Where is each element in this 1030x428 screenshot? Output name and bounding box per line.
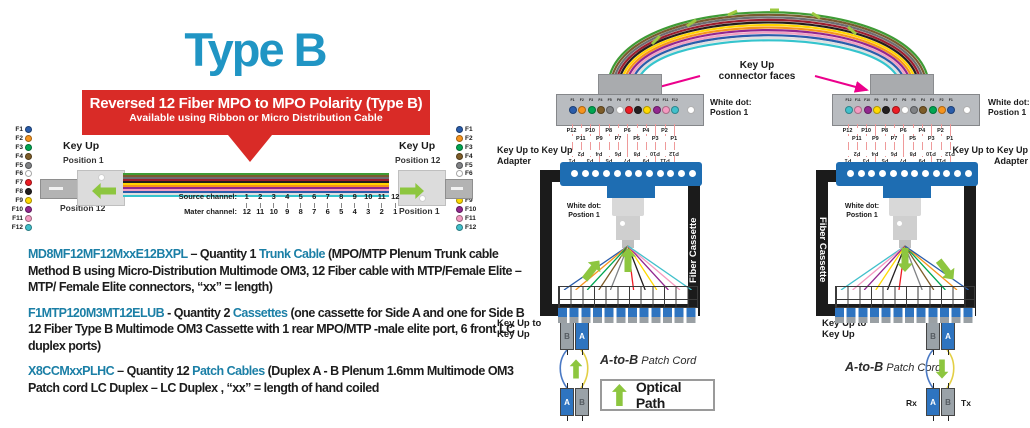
fiber-position-dot [910, 106, 918, 114]
fiber-label: F3 [465, 144, 480, 151]
cassette-description: F1MTP120M3MT12ELUB - Quantity 2 Cassette… [28, 305, 525, 355]
source-channel-value: 2 [254, 192, 268, 201]
cassette-mpo-right [893, 216, 917, 240]
fiber-color-dot [456, 170, 463, 177]
adapter-port-dot [689, 170, 696, 177]
mater-channel-value: 12 [240, 207, 254, 216]
fiber-position-dot [643, 106, 651, 114]
fiber-color-dot [456, 224, 463, 231]
fiber-position-dot [947, 106, 955, 114]
fiber-label: F8 [8, 188, 23, 195]
fiber-legend-left: F1F2F3F4F5F6F7F8F9F10F11F12 [8, 125, 32, 232]
rear-position-label: P6 [609, 150, 627, 156]
fiber-position-dot [892, 106, 900, 114]
source-channel-value: 5 [294, 192, 308, 201]
adapter-port-dot [678, 170, 685, 177]
adapter-port-dot [592, 170, 599, 177]
front-position-label: P1 [665, 136, 683, 142]
fiber-legend-row: F3 [456, 143, 480, 152]
fanout-fiber [628, 246, 680, 290]
mater-channel-value: 7 [308, 207, 322, 216]
banner-line2: Available using Ribbon or Micro Distribu… [82, 112, 430, 124]
keyup-connector-faces-label: Key Up connector faces [702, 60, 812, 82]
rear-position-label: P10 [922, 150, 940, 156]
fiber-label: F12 [8, 224, 23, 231]
separator: – [187, 247, 199, 261]
lc-feet-left [558, 317, 698, 323]
fiber-position-dot [616, 106, 624, 114]
fiber-position-dot [634, 106, 642, 114]
part-descriptions: MD8MF12MF12MxxE12BXPL – Quantity 1 Trunk… [28, 246, 525, 405]
trunk-right-keyup-label: Key Up [399, 140, 435, 152]
lc-duplex-bottom-right: A B [926, 388, 956, 416]
trunk-right-ferrule [445, 179, 473, 199]
mater-channel-label: Mater channel: [163, 207, 240, 216]
fiber-label: F2 [8, 135, 23, 142]
fiber-position-dot [854, 106, 862, 114]
rear-position-label: P8 [628, 150, 646, 156]
front-position-label: P5 [628, 136, 646, 142]
fiber-legend-row: F2 [456, 134, 480, 143]
fiber-label: F10 [8, 206, 23, 213]
fiber-label: F9 [8, 197, 23, 204]
source-channel-value: 4 [281, 192, 295, 201]
lc-port-grid-left [558, 300, 698, 308]
fiber-legend-row: F2 [8, 134, 32, 143]
source-channel-value: 7 [321, 192, 335, 201]
fiber-legend-row: F1 [456, 125, 480, 134]
lc-duplex-bottom-left: A B [560, 388, 590, 416]
lc-duplex-top-right: B A [926, 322, 956, 350]
source-channel-label: Source channel: [163, 192, 240, 201]
source-channel-value: 8 [335, 192, 349, 201]
fanout-fiber [905, 246, 945, 290]
rear-position-label: P4 [590, 150, 608, 156]
fiber-color-dot [25, 197, 32, 204]
mpo-connector-face-right: F12F11F10F9F8F7F6F5F4F3F2F1 [832, 94, 980, 126]
cassette-white-dot-label-right: White dot: Postion 1 [836, 203, 888, 220]
keyup-faces-line1: Key Up [702, 60, 812, 71]
tx-label: Tx [961, 398, 971, 408]
white-dot-line2: Postion 1 [836, 212, 888, 221]
white-dot-label-left: White dot: Postion 1 [710, 97, 752, 117]
front-position-label: P3 [922, 136, 940, 142]
duplex-half-a: A [575, 322, 589, 350]
fiber-color-dot [456, 162, 463, 169]
fiber-color-dot [456, 144, 463, 151]
trunk-left-pos1-label: Position 1 [63, 155, 104, 165]
adapter-port-dot [965, 170, 972, 177]
cassette-mpo-left [616, 216, 640, 240]
adapter-port-dot [933, 170, 940, 177]
fiber-label: F3 [8, 144, 23, 151]
lc-connectors-left [558, 308, 698, 317]
quantity: Quantity 2 [174, 306, 233, 320]
product-type: Cassettes [233, 306, 288, 320]
optical-up-arrow-icon [612, 384, 627, 406]
front-position-label: P8 [600, 128, 618, 134]
fiber-color-dot [456, 206, 463, 213]
fiber-cassette-label-right: Fiber Cassette [816, 198, 829, 302]
trunk-left-keyup-label: Key Up [63, 140, 99, 152]
adapter-port-dot [635, 170, 642, 177]
fanout-fiber [628, 246, 692, 290]
optical-path-label: Optical Path [636, 379, 713, 411]
fiber-position-dot [597, 106, 605, 114]
front-position-label: P6 [618, 128, 636, 134]
white-dot-line2: Postion 1 [556, 212, 612, 221]
white-dot-line1: White dot: [710, 97, 752, 107]
fiber-position-dot [845, 106, 853, 114]
adapter-port-dot [657, 170, 664, 177]
fiber-label: F5 [8, 162, 23, 169]
adapter-port-dot [922, 170, 929, 177]
duplex-half-a: A [941, 322, 955, 350]
fiber-position-dot [671, 106, 679, 114]
part-number: X8CCMxxPLHC [28, 364, 114, 378]
white-dot [98, 174, 105, 181]
fiber-label: F5 [465, 162, 480, 169]
fiber-position-dot [588, 106, 596, 114]
fiber-color-dot [25, 153, 32, 160]
optical-path-legend: Optical Path [600, 379, 715, 411]
fanout-fiber [905, 246, 957, 290]
fiber-color-dot [456, 215, 463, 222]
separator: - [164, 306, 174, 320]
lc-duplex-top-left: B A [560, 322, 590, 350]
banner: Reversed 12 Fiber MPO to MPO Polarity (T… [82, 90, 430, 135]
fiber-label: F1 [8, 126, 23, 133]
keyup-faces-line2: connector faces [702, 71, 812, 82]
trunk-right-pos12-label: Position 12 [395, 155, 440, 165]
fiber-color-dot [25, 126, 32, 133]
product-type: Trunk Cable [259, 247, 325, 261]
fiber-position-dot [662, 106, 670, 114]
fiber-color-dot [25, 144, 32, 151]
fiber-position-mini-label: F1 [942, 98, 959, 102]
mater-channel-value: 11 [254, 207, 268, 216]
patch-cord-text: Patch Cord [638, 355, 696, 367]
part-number: F1MTP120M3MT12ELUB [28, 306, 164, 320]
a-to-b-text: A-to-B [600, 353, 638, 367]
rear-position-label: P12 [665, 150, 683, 156]
fiber-legend-row: F1 [8, 125, 32, 134]
white-dot [619, 220, 626, 227]
duplex-half-b: B [575, 388, 589, 416]
fiber-position-mini-label: F12 [666, 98, 683, 102]
duplex-half-b: B [941, 388, 955, 416]
mpo-connector-face-left: F1F2F3F4F5F6F7F8F9F10F11F12 [556, 94, 704, 126]
keyup-to-line2: Key Up [497, 329, 541, 340]
fiber-label: F7 [8, 179, 23, 186]
adapter-port-dot [667, 170, 674, 177]
white-dot-line2: Postion 1 [710, 107, 752, 117]
adapter-port-dot [614, 170, 621, 177]
fiber-label: F11 [8, 215, 23, 222]
white-dot-line2: Postion 1 [988, 107, 1030, 117]
fiber-color-dot [25, 224, 32, 231]
rear-position-label: P6 [885, 150, 903, 156]
fiber-label: F11 [465, 215, 480, 222]
fiber-label: F2 [465, 135, 480, 142]
adapter-port-dot [582, 170, 589, 177]
front-position-label: P9 [590, 136, 608, 142]
fiber-legend-row: F3 [8, 143, 32, 152]
white-dot-line1: White dot: [556, 203, 612, 212]
lc-feet-right [835, 317, 975, 323]
lc-port-grid-right [835, 286, 975, 300]
source-channel-value: 3 [267, 192, 281, 201]
fiber-legend-row: F9 [8, 196, 32, 205]
white-dot-position1 [687, 106, 695, 114]
front-position-label: P7 [609, 136, 627, 142]
fiber-legend-row: F6 [456, 169, 480, 178]
adapter-port-dot [901, 170, 908, 177]
fiber-legend-row: F5 [8, 161, 32, 170]
fiber-color-dot [25, 135, 32, 142]
fiber-legend-row: F7 [8, 178, 32, 187]
fiber-position-dot [873, 106, 881, 114]
fiber-legend-row: F8 [8, 187, 32, 196]
front-position-label: P4 [637, 128, 655, 134]
fanout-fiber [841, 246, 905, 290]
type-b-polarity-diagram: Type B Reversed 12 Fiber MPO to MPO Pola… [0, 0, 1030, 428]
fiber-position-dot [919, 106, 927, 114]
fiber-position-dot [653, 106, 661, 114]
adapter-tab-right [883, 186, 931, 198]
fiber-position-dot [606, 106, 614, 114]
fiber-position-dot [901, 106, 909, 114]
adapter-label-line1: Key Up to Key Up [497, 145, 573, 156]
fanout-fiber [905, 246, 969, 290]
keyup-to-keyup-label-left: Key Up to Key Up [497, 318, 541, 340]
fiber-legend-row: F4 [8, 152, 32, 161]
rear-position-label: P2 [848, 150, 866, 156]
mater-channel-value: 8 [294, 207, 308, 216]
cassette-mpo-right [889, 196, 921, 216]
fanout-fiber [576, 246, 628, 290]
channel-map: Source channel:123456789101112Mater chan… [163, 192, 402, 216]
white-dot [419, 195, 426, 202]
quantity: Quantity 12 [127, 364, 193, 378]
fiber-legend-row: F12 [8, 223, 32, 232]
front-position-label: P7 [885, 136, 903, 142]
duplex-half-a: A [926, 388, 940, 416]
fiber-position-dot [938, 106, 946, 114]
fiber-label: F12 [465, 224, 480, 231]
fiber-color-dot [456, 153, 463, 160]
adapter-port-dot [868, 170, 875, 177]
fiber-color-dot [25, 162, 32, 169]
banner-pointer [228, 135, 272, 162]
adapter-port-dot [943, 170, 950, 177]
a-to-b-patch-cord-label-left: A-to-B Patch Cord [600, 351, 696, 369]
fiber-label: F6 [8, 170, 23, 177]
front-position-label: P12 [839, 128, 857, 134]
trunk-cable-description: MD8MF12MF12MxxE12BXPL – Quantity 1 Trunk… [28, 246, 525, 296]
keyup-to-line1: Key Up to [497, 318, 541, 329]
source-channel-value: 9 [348, 192, 362, 201]
fiber-label: F1 [465, 126, 480, 133]
keyup-to-line2: Key Up [822, 329, 866, 340]
fiber-color-dot [25, 170, 32, 177]
front-position-label: P4 [913, 128, 931, 134]
front-position-label: P11 [848, 136, 866, 142]
front-position-label: P3 [646, 136, 664, 142]
a-to-b-text: A-to-B [845, 360, 883, 374]
duplex-half-b: B [560, 322, 574, 350]
cassette-white-dot-label-left: White dot: Postion 1 [556, 203, 612, 220]
adapter-label-line1: Key Up to Key Up [940, 145, 1028, 156]
front-position-label: P2 [932, 128, 950, 134]
mater-channel-value: 6 [321, 207, 335, 216]
source-channel-row: Source channel:123456789101112 [163, 192, 402, 201]
lc-port-grid-left [558, 286, 698, 300]
fiber-label: F4 [465, 153, 480, 160]
fanout-fiber [864, 246, 905, 290]
white-dot-label-right: White dot: Postion 1 [988, 97, 1030, 117]
front-position-label: P10 [581, 128, 599, 134]
fiber-legend-row: F4 [456, 152, 480, 161]
front-position-label: P1 [941, 136, 959, 142]
adapter-port-dot [646, 170, 653, 177]
front-position-label: P6 [894, 128, 912, 134]
rx-label: Rx [906, 398, 917, 408]
fiber-position-dot [569, 106, 577, 114]
rear-position-label: P10 [646, 150, 664, 156]
fiber-legend-row: F12 [456, 223, 480, 232]
keyup-adapter-left [560, 162, 702, 186]
white-dot-position1 [963, 106, 971, 114]
keyup-adapter-right [836, 162, 978, 186]
patch-cable-description: X8CCMxxPLHC – Quantity 12 Patch Cables (… [28, 363, 525, 396]
fiber-color-dot [25, 206, 32, 213]
product-type: Patch Cables [192, 364, 265, 378]
front-position-label: P8 [876, 128, 894, 134]
adapter-port-dot [571, 170, 578, 177]
fiber-position-dot [578, 106, 586, 114]
source-channel-value: 10 [362, 192, 376, 201]
adapter-tab-left [607, 186, 655, 198]
trunk-right-pos1-label: Position 1 [399, 206, 440, 216]
duplex-half-b: B [926, 322, 940, 350]
duplex-half-a: A [560, 388, 574, 416]
fiber-color-dot [25, 188, 32, 195]
fiber-label: F10 [465, 206, 480, 213]
mater-channel-value: 2 [375, 207, 389, 216]
front-position-label: P9 [866, 136, 884, 142]
mater-channel-value: 4 [348, 207, 362, 216]
source-channel-value: 6 [308, 192, 322, 201]
ferrule-pins [49, 187, 63, 190]
mater-channel-row: Mater channel:121110987654321 [163, 207, 402, 216]
fiber-color-dot [25, 215, 32, 222]
front-position-label: P2 [656, 128, 674, 134]
mater-channel-value: 5 [335, 207, 349, 216]
adapter-port-dot [847, 170, 854, 177]
fiber-position-dot [864, 106, 872, 114]
fiber-position-dot [625, 106, 633, 114]
white-dot [896, 220, 903, 227]
fiber-color-dot [456, 135, 463, 142]
front-position-label: P10 [857, 128, 875, 134]
fanout-fiber [853, 246, 905, 290]
ferrule-pins [451, 187, 463, 190]
fiber-label: F6 [465, 170, 480, 177]
adapter-port-dot [858, 170, 865, 177]
source-channel-value: 11 [375, 192, 389, 201]
separator: – [114, 364, 126, 378]
fiber-position-dot [882, 106, 890, 114]
fiber-color-dot [456, 126, 463, 133]
fiber-color-dot [25, 179, 32, 186]
mater-channel-value: 10 [267, 207, 281, 216]
lc-port-grid-right [835, 300, 975, 308]
mater-channel-value: 3 [362, 207, 376, 216]
part-number: MD8MF12MF12MxxE12BXPL [28, 247, 187, 261]
white-dot-line1: White dot: [988, 97, 1030, 107]
page-title: Type B [95, 22, 415, 77]
fiber-legend-row: F11 [456, 214, 480, 223]
source-channel-value: 12 [389, 192, 403, 201]
adapter-port-dot [603, 170, 610, 177]
trunk-left-ferrule [40, 179, 78, 199]
front-position-label: P5 [904, 136, 922, 142]
rear-position-label: P8 [904, 150, 922, 156]
quantity: Quantity 1 [200, 247, 259, 261]
banner-line1: Reversed 12 Fiber MPO to MPO Polarity (T… [82, 90, 430, 112]
lc-connectors-right [835, 308, 975, 317]
fiber-legend-row: F6 [8, 169, 32, 178]
fiber-position-dot [929, 106, 937, 114]
fiber-legend-row: F5 [456, 161, 480, 170]
cassette-mpo-left [612, 196, 644, 216]
rear-position-label: P4 [866, 150, 884, 156]
fiber-legend-row: F11 [8, 214, 32, 223]
fiber-legend-row: F10 [8, 205, 32, 214]
fiber-label: F4 [8, 153, 23, 160]
fiber-legend-row: F10 [456, 205, 480, 214]
adapter-port-dot [625, 170, 632, 177]
adapter-port-dot [954, 170, 961, 177]
rear-position-label: P2 [572, 150, 590, 156]
mater-channel-value: 9 [281, 207, 295, 216]
white-dot-line1: White dot: [836, 203, 888, 212]
position-labels-left: P12P11P2P1P10P9P4P3P8P7P6P5P6P5P8P7P4P3P… [556, 124, 702, 166]
front-position-label: P11 [572, 136, 590, 142]
source-channel-value: 1 [240, 192, 254, 201]
front-position-label: P12 [563, 128, 581, 134]
mater-channel-value: 1 [389, 207, 403, 216]
fanout-fiber [628, 246, 668, 290]
adapter-port-dot [911, 170, 918, 177]
adapter-port-dot [890, 170, 897, 177]
adapter-port-dot [879, 170, 886, 177]
